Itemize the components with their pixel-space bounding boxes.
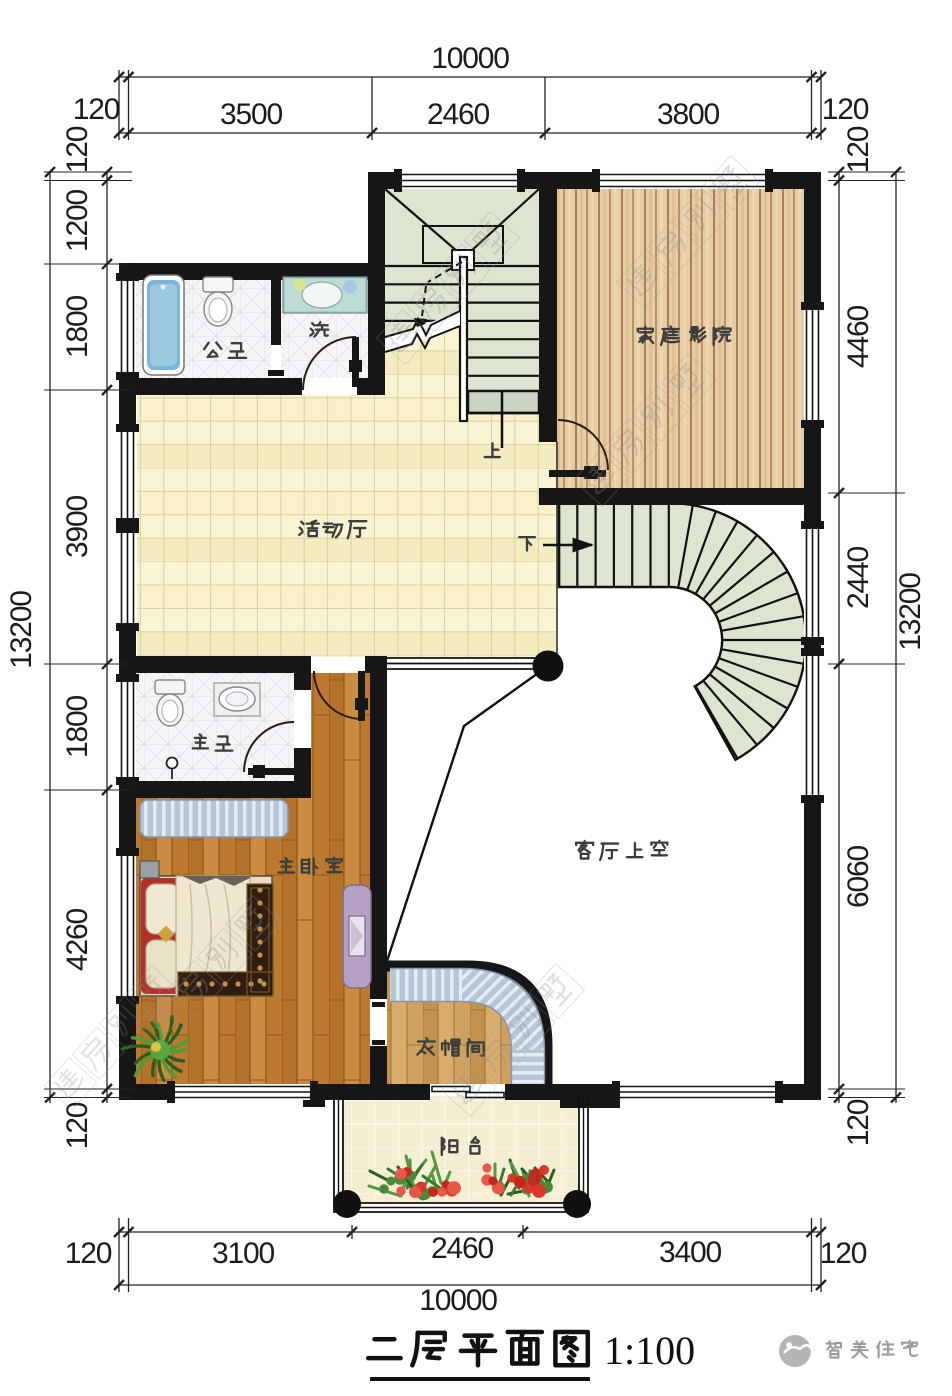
svg-text:2460: 2460 xyxy=(431,1232,493,1265)
svg-text:120: 120 xyxy=(842,1099,875,1146)
svg-text:120: 120 xyxy=(820,1237,867,1270)
svg-text:120: 120 xyxy=(73,93,120,126)
svg-text:120: 120 xyxy=(822,93,869,126)
svg-text:13200: 13200 xyxy=(894,573,927,651)
svg-text:2460: 2460 xyxy=(427,98,489,131)
svg-text:120: 120 xyxy=(842,126,875,173)
svg-text:3100: 3100 xyxy=(212,1237,274,1270)
svg-text:4460: 4460 xyxy=(842,306,875,368)
svg-text:1:100: 1:100 xyxy=(604,1328,695,1373)
svg-text:2440: 2440 xyxy=(842,547,875,609)
svg-text:3400: 3400 xyxy=(659,1236,721,1269)
svg-text:120: 120 xyxy=(61,126,94,173)
svg-text:3900: 3900 xyxy=(61,496,94,558)
svg-text:1800: 1800 xyxy=(61,296,94,358)
svg-text:3500: 3500 xyxy=(220,98,282,131)
svg-text:4260: 4260 xyxy=(61,909,94,971)
svg-text:10000: 10000 xyxy=(431,42,509,75)
svg-text:10000: 10000 xyxy=(419,1284,497,1317)
svg-text:13200: 13200 xyxy=(5,591,38,669)
svg-text:120: 120 xyxy=(65,1237,112,1270)
svg-text:6060: 6060 xyxy=(842,846,875,908)
svg-text:1200: 1200 xyxy=(61,190,94,252)
svg-text:1800: 1800 xyxy=(61,696,94,758)
svg-text:3800: 3800 xyxy=(657,98,719,131)
svg-text:120: 120 xyxy=(61,1102,94,1149)
